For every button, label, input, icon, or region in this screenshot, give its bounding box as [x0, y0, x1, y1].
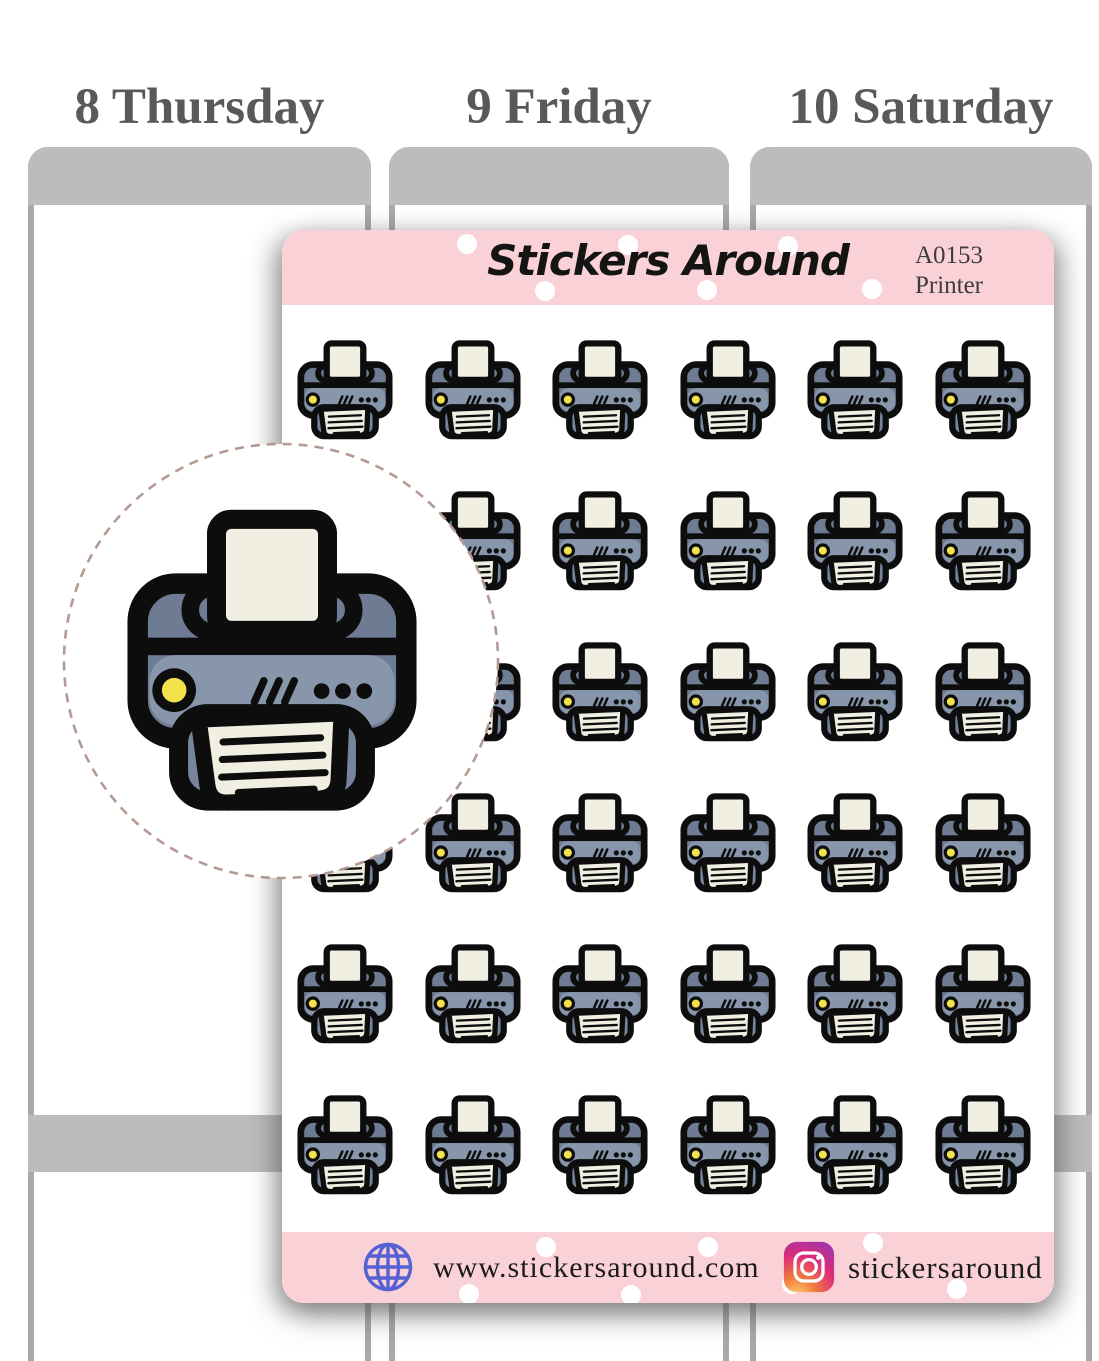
day-title-friday: 9 Friday	[389, 70, 729, 144]
printer-icon	[425, 338, 521, 442]
printer-icon	[552, 640, 648, 744]
printer-icon	[807, 640, 903, 744]
printer-icon	[935, 338, 1031, 442]
printer-sticker	[552, 942, 648, 1046]
printer-icon	[807, 942, 903, 1046]
printer-sticker	[807, 1093, 903, 1197]
printer-sticker	[935, 489, 1031, 593]
printer-sticker	[680, 640, 776, 744]
website-url: www.stickersaround.com	[433, 1232, 760, 1303]
printer-icon	[807, 791, 903, 895]
printer-icon	[297, 942, 393, 1046]
globe-icon	[362, 1241, 414, 1293]
printer-icon	[680, 338, 776, 442]
instagram-icon	[782, 1240, 836, 1294]
printer-icon	[935, 791, 1031, 895]
printer-icon	[680, 489, 776, 593]
day-title-saturday: 10 Saturday	[750, 70, 1092, 144]
printer-icon	[552, 942, 648, 1046]
printer-icon	[425, 942, 521, 1046]
printer-icon	[935, 489, 1031, 593]
printer-sticker	[552, 1093, 648, 1197]
printer-sticker	[680, 942, 776, 1046]
printer-sticker	[935, 640, 1031, 744]
printer-sticker	[552, 338, 648, 442]
printer-icon	[297, 1093, 393, 1197]
sheet-footer-band: www.stickersaround.com stickersaround	[282, 1232, 1054, 1303]
zoom-detail-circle	[61, 441, 501, 881]
printer-sticker	[425, 1093, 521, 1197]
printer-icon	[807, 489, 903, 593]
printer-icon	[297, 338, 393, 442]
day-title-thursday: 8 Thursday	[28, 70, 371, 144]
printer-icon	[680, 640, 776, 744]
printer-sticker	[552, 489, 648, 593]
printer-sticker	[935, 791, 1031, 895]
printer-sticker	[807, 640, 903, 744]
printer-icon	[680, 1093, 776, 1197]
planner-column-header	[750, 147, 1092, 205]
printer-icon	[680, 791, 776, 895]
printer-sticker	[680, 791, 776, 895]
printer-icon	[935, 1093, 1031, 1197]
printer-sticker	[297, 1093, 393, 1197]
printer-sticker	[935, 1093, 1031, 1197]
printer-sticker	[552, 791, 648, 895]
printer-icon	[552, 489, 648, 593]
instagram-handle: stickersaround	[848, 1232, 1043, 1303]
printer-sticker	[552, 640, 648, 744]
printer-icon	[425, 1093, 521, 1197]
printer-icon	[935, 640, 1031, 744]
printer-sticker	[935, 942, 1031, 1046]
printer-sticker	[680, 1093, 776, 1197]
printer-icon	[935, 942, 1031, 1046]
printer-icon	[552, 791, 648, 895]
printer-sticker	[935, 338, 1031, 442]
printer-sticker	[807, 338, 903, 442]
product-photo: 8 Thursday 9 Friday 10 Saturday Stickers…	[0, 0, 1099, 1361]
planner-column-header	[28, 147, 371, 205]
printer-sticker	[680, 338, 776, 442]
printer-icon	[807, 338, 903, 442]
printer-icon	[126, 507, 418, 815]
printer-sticker	[807, 489, 903, 593]
printer-sticker	[807, 791, 903, 895]
printer-sticker	[425, 338, 521, 442]
printer-sticker	[425, 942, 521, 1046]
printer-icon	[552, 338, 648, 442]
printer-sticker	[297, 338, 393, 442]
printer-icon	[680, 942, 776, 1046]
printer-sticker	[680, 489, 776, 593]
printer-sticker	[297, 942, 393, 1046]
planner-column-header	[389, 147, 729, 205]
printer-icon	[807, 1093, 903, 1197]
printer-icon	[552, 1093, 648, 1197]
printer-sticker	[807, 942, 903, 1046]
